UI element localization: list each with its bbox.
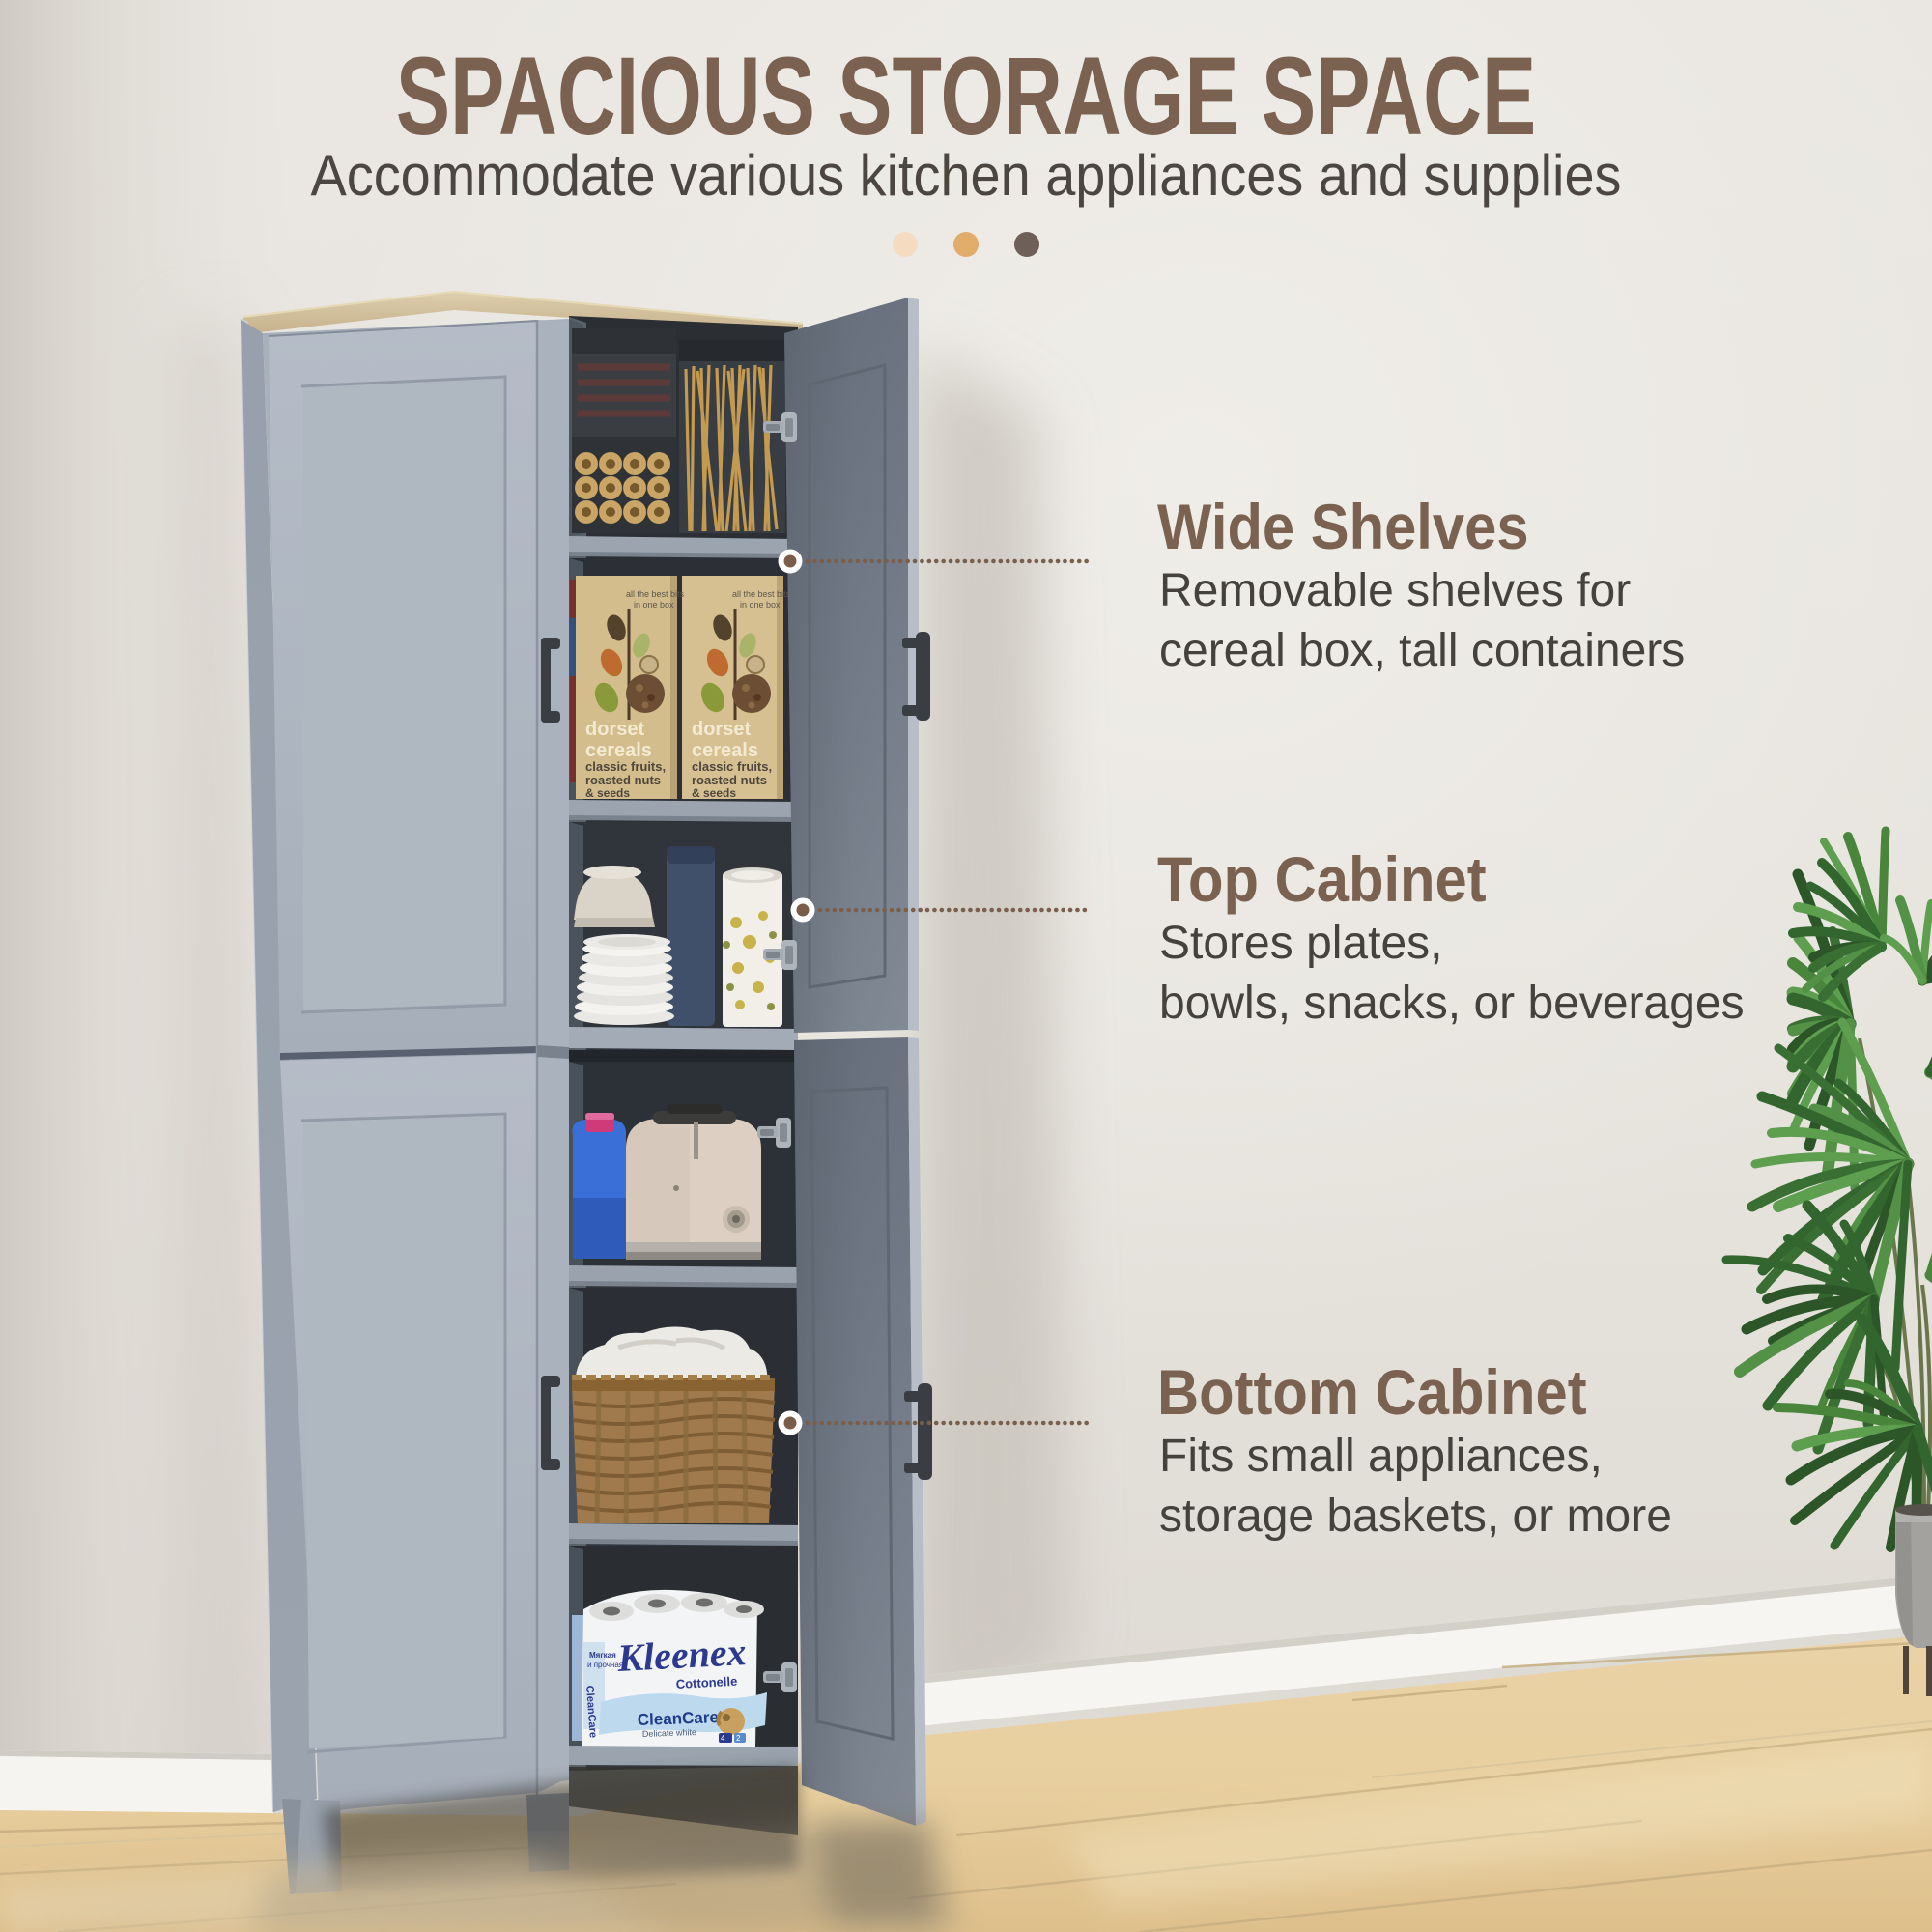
svg-text:dorset: dorset — [692, 719, 751, 740]
svg-text:Мягкая: Мягкая — [589, 1651, 616, 1660]
svg-text:all the best bits: all the best bits — [732, 589, 791, 599]
svg-text:in one box: in one box — [740, 600, 781, 610]
svg-text:& seeds: & seeds — [692, 786, 736, 800]
svg-text:& seeds: & seeds — [585, 786, 630, 800]
svg-text:roasted nuts: roasted nuts — [692, 773, 767, 787]
svg-text:cereals: cereals — [585, 740, 652, 761]
svg-text:classic fruits,: classic fruits, — [692, 759, 772, 774]
svg-text:4: 4 — [721, 1734, 725, 1743]
svg-text:cereals: cereals — [692, 740, 758, 761]
svg-text:Kleenex: Kleenex — [615, 1630, 747, 1680]
svg-text:all the best bits: all the best bits — [626, 589, 685, 599]
svg-text:in one box: in one box — [634, 600, 674, 610]
svg-text:roasted nuts: roasted nuts — [585, 773, 661, 787]
svg-text:и прочная: и прочная — [587, 1661, 623, 1669]
svg-text:classic fruits,: classic fruits, — [585, 759, 666, 774]
svg-text:CleanCare: CleanCare — [637, 1708, 719, 1729]
svg-text:dorset: dorset — [585, 719, 644, 740]
svg-text:2: 2 — [736, 1734, 741, 1743]
svg-text:Delicate white: Delicate white — [642, 1727, 696, 1739]
